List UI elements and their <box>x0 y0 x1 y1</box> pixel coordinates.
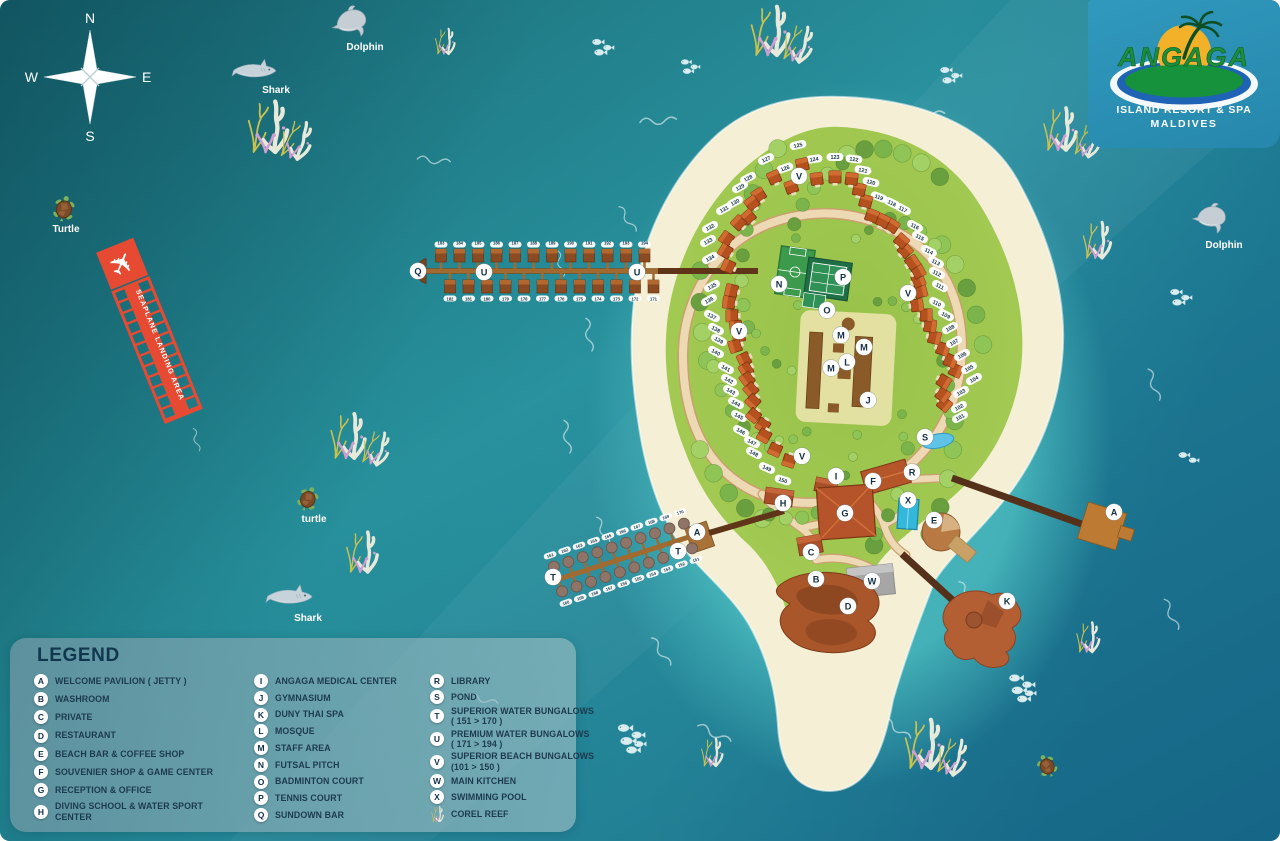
svg-text:182: 182 <box>447 297 455 302</box>
map-marker-R[interactable]: R <box>904 464 921 481</box>
legend-key-T: T <box>430 709 444 723</box>
svg-text:U: U <box>481 267 488 277</box>
legend-key-X: X <box>430 790 444 804</box>
legend-key-R: R <box>430 674 444 688</box>
legend-label: RECEPTION & OFFICE <box>55 785 152 795</box>
legend-key-Q: Q <box>254 808 268 822</box>
legend-column-1: AWELCOME PAVILION ( JETTY )BWASHROOMCPRI… <box>34 674 238 822</box>
svg-text:V: V <box>905 288 912 298</box>
dolphin-label: Dolphin <box>1205 240 1242 251</box>
legend-item-C: CPRIVATE <box>34 710 238 724</box>
premium-water-bungalow: 177 <box>536 280 549 302</box>
svg-text:186: 186 <box>493 241 501 246</box>
logo-panel: ANGAGA ISLAND RESORT & SPA MALDIVES <box>1088 0 1280 148</box>
map-marker-G[interactable]: G <box>837 505 854 522</box>
map-marker-F[interactable]: F <box>865 473 882 490</box>
legend-label: WELCOME PAVILION ( JETTY ) <box>55 676 187 686</box>
svg-text:E: E <box>931 515 937 525</box>
legend-key-C: C <box>34 710 48 724</box>
legend-item-L: LMOSQUE <box>254 724 414 738</box>
map-marker-E[interactable]: E <box>926 512 943 529</box>
map-marker-A[interactable]: A <box>689 524 706 541</box>
premium-water-bungalow: 186 <box>490 241 503 262</box>
map-marker-J[interactable]: J <box>860 392 877 409</box>
legend-label: SUNDOWN BAR <box>275 810 344 820</box>
legend-label: DIVING SCHOOL & WATER SPORT CENTER <box>55 801 238 822</box>
svg-text:193: 193 <box>623 241 631 246</box>
legend-item-G: GRECEPTION & OFFICE <box>34 783 238 797</box>
svg-text:Q: Q <box>414 266 421 276</box>
legend-key-L: L <box>254 724 268 738</box>
legend-key-O: O <box>254 775 268 789</box>
map-marker-H[interactable]: H <box>775 495 792 512</box>
svg-text:M: M <box>837 330 845 340</box>
compass-e: E <box>142 69 151 85</box>
legend-label: POND <box>451 692 477 702</box>
svg-text:B: B <box>813 574 820 584</box>
premium-water-bungalow: 181 <box>462 280 475 302</box>
svg-text:K: K <box>1004 596 1011 606</box>
legend-label: COREL REEF <box>451 809 509 819</box>
premium-water-bungalow: 173 <box>610 280 623 302</box>
map-marker-K[interactable]: K <box>999 593 1016 610</box>
shark-label: Shark <box>262 85 290 96</box>
legend-columns: AWELCOME PAVILION ( JETTY )BWASHROOMCPRI… <box>34 674 606 822</box>
map-marker-D[interactable]: D <box>840 598 857 615</box>
legend-label: MAIN KITCHEN <box>451 776 516 786</box>
turtle-label: Turtle <box>52 224 79 235</box>
legend-label: BEACH BAR & COFFEE SHOP <box>55 749 184 759</box>
svg-text:181: 181 <box>465 297 473 302</box>
coral-icon <box>430 806 444 822</box>
legend-item-X: XSWIMMING POOL <box>430 790 606 804</box>
premium-water-bungalow: 189 <box>546 241 559 262</box>
legend-key-G: G <box>34 783 48 797</box>
svg-text:183: 183 <box>438 241 446 246</box>
svg-text:H: H <box>780 498 787 508</box>
resort-logo: ANGAGA ISLAND RESORT & SPA MALDIVES <box>1088 0 1280 148</box>
svg-text:G: G <box>841 508 848 518</box>
shark-label: Shark <box>294 613 322 624</box>
svg-text:P: P <box>840 272 846 282</box>
restaurant-building <box>776 572 879 652</box>
svg-text:174: 174 <box>595 297 603 302</box>
legend-label: WASHROOM <box>55 694 110 704</box>
legend-key-N: N <box>254 758 268 772</box>
svg-text:C: C <box>808 547 815 557</box>
legend-label: SWIMMING POOL <box>451 792 527 802</box>
premium-water-bungalow: 192 <box>601 241 614 262</box>
legend-label: SOUVENIER SHOP & GAME CENTER <box>55 767 213 777</box>
legend-label: DUNY THAI SPA <box>275 709 344 719</box>
legend-key-B: B <box>34 692 48 706</box>
map-marker-M[interactable]: M <box>823 360 840 377</box>
legend-label: GYMNASIUM <box>275 693 331 703</box>
legend-key-V: V <box>430 755 444 769</box>
map-marker-T[interactable]: T <box>545 569 562 586</box>
legend-label: RESTAURANT <box>55 730 116 740</box>
map-marker-P[interactable]: P <box>835 269 852 286</box>
legend-item-H: HDIVING SCHOOL & WATER SPORT CENTER <box>34 801 238 822</box>
map-marker-V[interactable]: V <box>900 285 917 302</box>
legend-item-coral-reef: COREL REEF <box>430 806 606 822</box>
dolphin-label: Dolphin <box>346 42 383 53</box>
compass-n: N <box>85 10 95 26</box>
svg-text:I: I <box>835 471 838 481</box>
map-marker-V[interactable]: V <box>791 168 808 185</box>
svg-text:190: 190 <box>567 241 575 246</box>
premium-water-bungalow: 188 <box>527 241 540 262</box>
premium-water-bungalow: 194 <box>638 241 651 262</box>
map-marker-X[interactable]: X <box>900 492 917 509</box>
legend-item-A: AWELCOME PAVILION ( JETTY ) <box>34 674 238 688</box>
svg-text:U: U <box>634 267 641 277</box>
legend-label: TENNIS COURT <box>275 793 342 803</box>
legend-item-U: UPREMIUM WATER BUNGALOWS( 171 > 194 ) <box>430 729 606 750</box>
legend-label: LIBRARY <box>451 676 490 686</box>
legend-item-O: OBADMINTON COURT <box>254 775 414 789</box>
premium-water-bungalow: 184 <box>453 241 466 262</box>
svg-text:180: 180 <box>484 297 492 302</box>
svg-text:185: 185 <box>475 241 483 246</box>
legend-item-B: BWASHROOM <box>34 692 238 706</box>
legend-item-E: EBEACH BAR & COFFEE SHOP <box>34 747 238 761</box>
svg-text:R: R <box>909 467 916 477</box>
legend-panel: LEGEND AWELCOME PAVILION ( JETTY )BWASHR… <box>10 638 576 832</box>
premium-water-bungalow: 174 <box>592 280 605 302</box>
map-marker-W[interactable]: W <box>864 573 881 590</box>
legend-label: SUPERIOR BEACH BUNGALOWS(101 > 150 ) <box>451 751 594 772</box>
premium-water-bungalow: 191 <box>583 241 596 262</box>
premium-water-bungalow: 178 <box>518 280 531 302</box>
svg-text:179: 179 <box>502 297 510 302</box>
legend-key-H: H <box>34 805 48 819</box>
premium-water-bungalow: 175 <box>573 280 586 302</box>
legend-item-T: TSUPERIOR WATER BUNGALOWS( 151 > 170 ) <box>430 706 606 727</box>
premium-water-bungalow: 179 <box>499 280 512 302</box>
premium-water-bungalow: 183 <box>435 241 448 262</box>
svg-text:A: A <box>694 527 701 537</box>
svg-text:J: J <box>865 395 870 405</box>
svg-text:F: F <box>870 476 876 486</box>
svg-text:178: 178 <box>521 297 529 302</box>
svg-text:D: D <box>845 601 852 611</box>
svg-text:123: 123 <box>831 155 840 161</box>
map-marker-O[interactable]: O <box>819 302 836 319</box>
bungalow-number-123: 123 <box>827 153 844 161</box>
map-marker-B[interactable]: B <box>808 571 825 588</box>
legend-item-V: VSUPERIOR BEACH BUNGALOWS(101 > 150 ) <box>430 751 606 772</box>
svg-text:V: V <box>799 451 806 461</box>
legend-label: SUPERIOR WATER BUNGALOWS( 151 > 170 ) <box>451 706 594 727</box>
legend-label: PREMIUM WATER BUNGALOWS( 171 > 194 ) <box>451 729 589 750</box>
map-marker-Q[interactable]: Q <box>410 263 427 280</box>
svg-text:M: M <box>827 363 835 373</box>
legend-label: PRIVATE <box>55 712 93 722</box>
legend-item-F: FSOUVENIER SHOP & GAME CENTER <box>34 765 238 779</box>
legend-key-J: J <box>254 691 268 705</box>
legend-key-D: D <box>34 729 48 743</box>
svg-text:W: W <box>868 576 877 586</box>
legend-item-J: JGYMNASIUM <box>254 691 414 705</box>
legend-item-W: WMAIN KITCHEN <box>430 774 606 788</box>
turtle-label: turtle <box>302 514 327 525</box>
svg-text:M: M <box>860 342 868 352</box>
legend-item-R: RLIBRARY <box>430 674 606 688</box>
legend-key-M: M <box>254 741 268 755</box>
map-marker-T[interactable]: T <box>670 543 687 560</box>
compass-s: S <box>85 128 94 144</box>
legend-column-2: IANGAGA MEDICAL CENTERJGYMNASIUMKDUNY TH… <box>254 674 414 822</box>
beach-bungalow-hut <box>829 171 841 186</box>
resort-map: ✈ SEAPLANE LANDING AREA N E S W <box>0 0 1280 841</box>
legend-item-M: MSTAFF AREA <box>254 741 414 755</box>
svg-text:V: V <box>736 326 743 336</box>
legend-item-N: NFUTSAL PITCH <box>254 758 414 772</box>
svg-text:191: 191 <box>586 241 594 246</box>
legend-key-S: S <box>430 690 444 704</box>
map-marker-I[interactable]: I <box>828 468 845 485</box>
premium-water-bungalow: 193 <box>620 241 633 262</box>
map-marker-M[interactable]: M <box>856 339 873 356</box>
premium-water-bungalow: 176 <box>555 280 568 302</box>
legend-key-I: I <box>254 674 268 688</box>
premium-water-bungalow: 172 <box>629 280 642 302</box>
svg-text:188: 188 <box>530 241 538 246</box>
map-marker-C[interactable]: C <box>803 544 820 561</box>
legend-key-K: K <box>254 708 268 722</box>
legend-key-P: P <box>254 791 268 805</box>
map-marker-V[interactable]: V <box>794 448 811 465</box>
legend-key-A: A <box>34 674 48 688</box>
premium-water-bungalow: 187 <box>509 241 522 262</box>
logo-name: ANGAGA <box>1117 42 1250 72</box>
svg-text:173: 173 <box>613 297 621 302</box>
svg-text:124: 124 <box>809 157 819 164</box>
premium-water-bungalow: 171 <box>647 280 660 302</box>
svg-text:V: V <box>796 171 803 181</box>
legend-label: ANGAGA MEDICAL CENTER <box>275 676 397 686</box>
svg-text:194: 194 <box>641 241 649 246</box>
svg-text:T: T <box>550 572 556 582</box>
svg-text:192: 192 <box>604 241 612 246</box>
legend-key-W: W <box>430 774 444 788</box>
legend-key-U: U <box>430 732 444 746</box>
svg-text:175: 175 <box>576 297 584 302</box>
logo-line2: MALDIVES <box>1150 118 1217 130</box>
premium-water-bungalow: 185 <box>472 241 485 262</box>
map-marker-A[interactable]: A <box>1106 504 1123 521</box>
svg-text:172: 172 <box>632 297 640 302</box>
svg-text:S: S <box>922 432 928 442</box>
legend-key-E: E <box>34 747 48 761</box>
map-marker-L[interactable]: L <box>839 354 856 371</box>
svg-text:T: T <box>675 546 681 556</box>
legend-item-P: PTENNIS COURT <box>254 791 414 805</box>
svg-text:L: L <box>844 357 850 367</box>
map-marker-N[interactable]: N <box>771 276 788 293</box>
legend-item-I: IANGAGA MEDICAL CENTER <box>254 674 414 688</box>
svg-text:189: 189 <box>549 241 557 246</box>
svg-text:122: 122 <box>849 157 859 164</box>
compass-w: W <box>25 69 39 85</box>
map-marker-V[interactable]: V <box>731 323 748 340</box>
map-marker-M[interactable]: M <box>833 327 850 344</box>
map-marker-U[interactable]: U <box>476 264 493 281</box>
legend-item-Q: QSUNDOWN BAR <box>254 808 414 822</box>
legend-column-3: RLIBRARYSPONDTSUPERIOR WATER BUNGALOWS( … <box>430 674 606 822</box>
legend-item-S: SPOND <box>430 690 606 704</box>
map-marker-S[interactable]: S <box>917 429 934 446</box>
svg-text:171: 171 <box>650 297 658 302</box>
legend-item-D: DRESTAURANT <box>34 729 238 743</box>
svg-text:177: 177 <box>539 297 547 302</box>
legend-key-F: F <box>34 765 48 779</box>
logo-line1: ISLAND RESORT & SPA <box>1116 104 1251 116</box>
svg-text:A: A <box>1111 507 1118 517</box>
premium-water-bungalow: 190 <box>564 241 577 262</box>
legend-label: FUTSAL PITCH <box>275 760 340 770</box>
legend-label: STAFF AREA <box>275 743 331 753</box>
legend-label: MOSQUE <box>275 726 315 736</box>
legend-item-K: KDUNY THAI SPA <box>254 708 414 722</box>
premium-water-bungalow: 180 <box>481 280 494 302</box>
svg-text:187: 187 <box>512 241 520 246</box>
svg-text:176: 176 <box>558 297 566 302</box>
svg-text:X: X <box>905 495 912 505</box>
map-marker-U[interactable]: U <box>629 264 646 281</box>
legend-title: LEGEND <box>37 645 120 667</box>
svg-text:O: O <box>823 305 830 315</box>
svg-text:184: 184 <box>456 241 464 246</box>
svg-text:N: N <box>776 279 783 289</box>
legend-label: BADMINTON COURT <box>275 776 364 786</box>
premium-water-bungalow: 182 <box>444 280 457 302</box>
